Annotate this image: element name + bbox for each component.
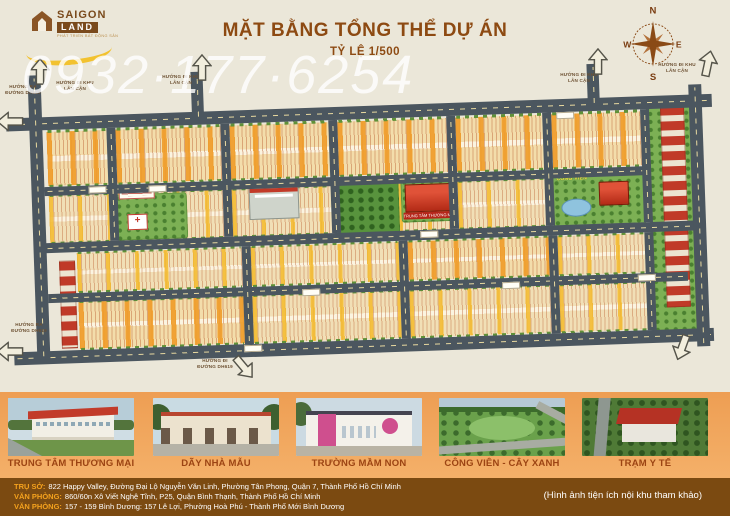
park-building [599, 181, 630, 206]
address-label: VĂN PHÒNG: [14, 502, 62, 511]
photo-kindergarten [296, 398, 422, 456]
residential-block [455, 115, 544, 172]
red-roof-row [59, 260, 78, 349]
amenity-gallery: TRUNG TÂM THƯƠNG MẠI DÃY NHÀ MẪU [0, 392, 730, 478]
residential-block [409, 286, 552, 338]
brand-name-top: SAIGON [57, 10, 118, 21]
address-label: VĂN PHÒNG: [14, 492, 62, 501]
commercial-center-building [405, 183, 454, 213]
residential-block [337, 118, 448, 176]
gallery-caption: TRƯỜNG MẦM NON [286, 458, 432, 469]
address-label: TRỤ SỞ: [14, 482, 45, 491]
footer: TRỤ SỞ:822 Happy Valley, Đường Đại Lộ Ng… [0, 478, 730, 516]
residential-block [49, 194, 111, 243]
residential-block [252, 291, 402, 343]
direction-label-neighbor-left: HƯỚNG ĐI KHU LÂN CẬN [52, 80, 98, 92]
residential-block [557, 233, 645, 275]
gallery-caption: CÔNG VIÊN - CÂY XANH [429, 458, 575, 469]
residential-block [46, 130, 108, 186]
photo-commercial-center [8, 398, 134, 456]
residential-block [551, 111, 642, 168]
address-text: 157 - 159 Bình Dương: 157 Lê Lợi, Phường… [65, 502, 344, 511]
gallery-caption: TRUNG TÂM THƯƠNG MẠI [0, 458, 144, 469]
gallery-caption: TRẠM Y TẾ [572, 458, 718, 469]
compass-east: E [676, 39, 682, 49]
road-name-tag [244, 345, 262, 353]
road-name-tag [638, 274, 656, 282]
medical-station-building: + [127, 214, 148, 231]
brand-tagline: PHÁT TRIỂN BẤT ĐỘNG SẢN [57, 35, 118, 39]
direction-arrow-icon [0, 112, 24, 132]
residential-block [115, 126, 222, 184]
residential-block [559, 282, 648, 332]
residential-block [457, 179, 546, 229]
direction-arrow-icon [30, 58, 50, 85]
road-name-tag [502, 282, 520, 290]
photo-park [439, 398, 565, 456]
kindergarten-building [249, 186, 300, 220]
central-park [336, 177, 400, 237]
photo-medical-station [582, 398, 708, 456]
photo-model-houses [153, 398, 279, 456]
direction-arrow-icon [588, 48, 608, 75]
compass-north: N [650, 6, 657, 17]
brand-name-bottom: LAND [57, 22, 98, 33]
direction-label-neighbor-right: HƯỚNG ĐI KHU LÂN CẬN [654, 62, 700, 74]
address-line: TRỤ SỞ:822 Happy Valley, Đường Đại Lộ Ng… [14, 482, 401, 492]
compass-west: W [623, 39, 632, 49]
direction-arrow-icon [0, 342, 24, 362]
direction-label-out-dh619-top: HƯỚNG RA ĐƯỜNG DH619 [2, 84, 44, 96]
residential-block [77, 247, 243, 292]
residential-block [251, 242, 400, 286]
road-name-tag [420, 230, 438, 238]
residential-block [407, 237, 549, 281]
direction-label-out-dh619-bottom: HƯỚNG RA ĐƯỜNG DH619 [8, 322, 50, 334]
gallery-caption: DÃY NHÀ MẪU [143, 458, 289, 469]
direction-arrow-icon [192, 54, 212, 81]
road-name-tag [302, 289, 320, 297]
road-name-tag [556, 112, 574, 120]
residential-block [229, 122, 330, 179]
left-park [115, 192, 189, 240]
road-name-tag [88, 186, 106, 194]
road-name-tag [148, 185, 166, 193]
poster: + TRUNG TÂM THƯƠNG MẠI CÔNG VIÊN HƯỚNG R… [0, 0, 730, 516]
address-line: VĂN PHÒNG:157 - 159 Bình Dương: 157 Lê L… [14, 502, 401, 512]
address-text: 860/60n Xô Viết Nghệ Tĩnh, P25, Quận Bìn… [65, 492, 320, 501]
house-icon [30, 10, 54, 32]
footer-note: (Hình ảnh tiện ích nội khu tham khảo) [544, 490, 702, 501]
address-text: 822 Happy Valley, Đường Đại Lộ Nguyễn Vă… [48, 482, 400, 491]
address-line: VĂN PHÒNG:860/60n Xô Viết Nghệ Tĩnh, P25… [14, 492, 401, 502]
residential-block [78, 296, 245, 349]
